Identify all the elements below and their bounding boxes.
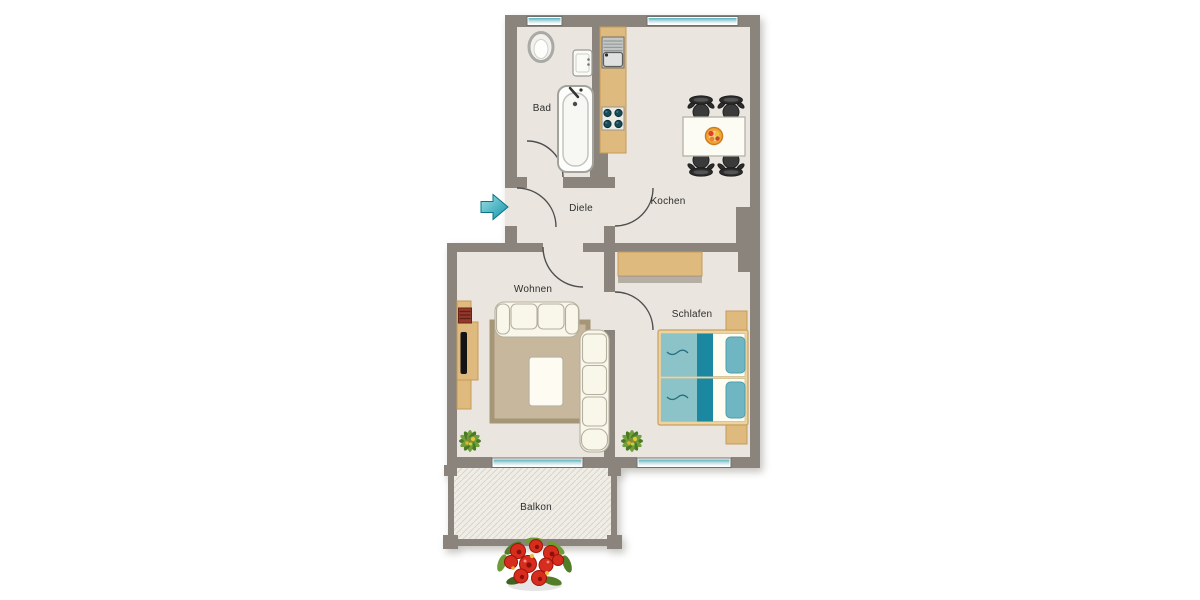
fruit-bowl [706,128,723,145]
wall-bottom-left [447,457,492,468]
room-label-schlafen: Schlafen [672,309,713,320]
room-label-diele: Diele [569,203,593,214]
nightstand [726,311,747,330]
wall-divider-right [583,243,760,252]
floor-plan-svg: Bad [0,0,1200,600]
wall-bottom-right [731,457,760,468]
window-wohnen [492,458,583,468]
nightstand [726,425,747,444]
window-schlafen [637,458,731,468]
kitchen-counter [600,27,626,153]
bathtub [558,86,593,172]
balcony-rail-right [611,468,617,545]
wall-divider-left [447,243,543,252]
wall-bottom-mid [583,457,637,468]
room-label-kochen: Kochen [650,196,685,207]
kitchen-sink [602,37,624,68]
wall-diele-kochen-stub [604,226,615,243]
mattress-top [661,334,745,377]
room-label-bad: Bad [533,103,551,114]
balcony-post [607,535,622,549]
window-bad [527,17,562,26]
wall-wohnen-schlafen-upper [604,252,615,292]
entrance-arrow-icon [481,195,508,220]
floor-plan: Bad [0,0,1200,600]
stove [602,107,624,130]
toilet [529,33,553,62]
balcony-post [443,535,458,549]
wall-left-upper [505,15,517,188]
room-label-wohnen: Wohnen [514,284,552,295]
wall-right [750,15,760,468]
tv [461,332,468,374]
room-label-balkon: Balkon [520,502,552,513]
wall-chimney-kochen [736,207,750,243]
balcony-rail-left [448,468,454,545]
window-kochen [647,17,738,26]
mattress-bottom [661,379,745,422]
double-bed [658,330,748,425]
wall-bad-diele-left [505,177,527,188]
bathroom-sink [573,50,592,76]
wall-left-lower [447,243,457,468]
wall-bad-diele-right [563,177,615,188]
wall-chimney-schlafen [738,252,750,272]
coffee-table [529,357,563,406]
wardrobe [618,252,702,283]
